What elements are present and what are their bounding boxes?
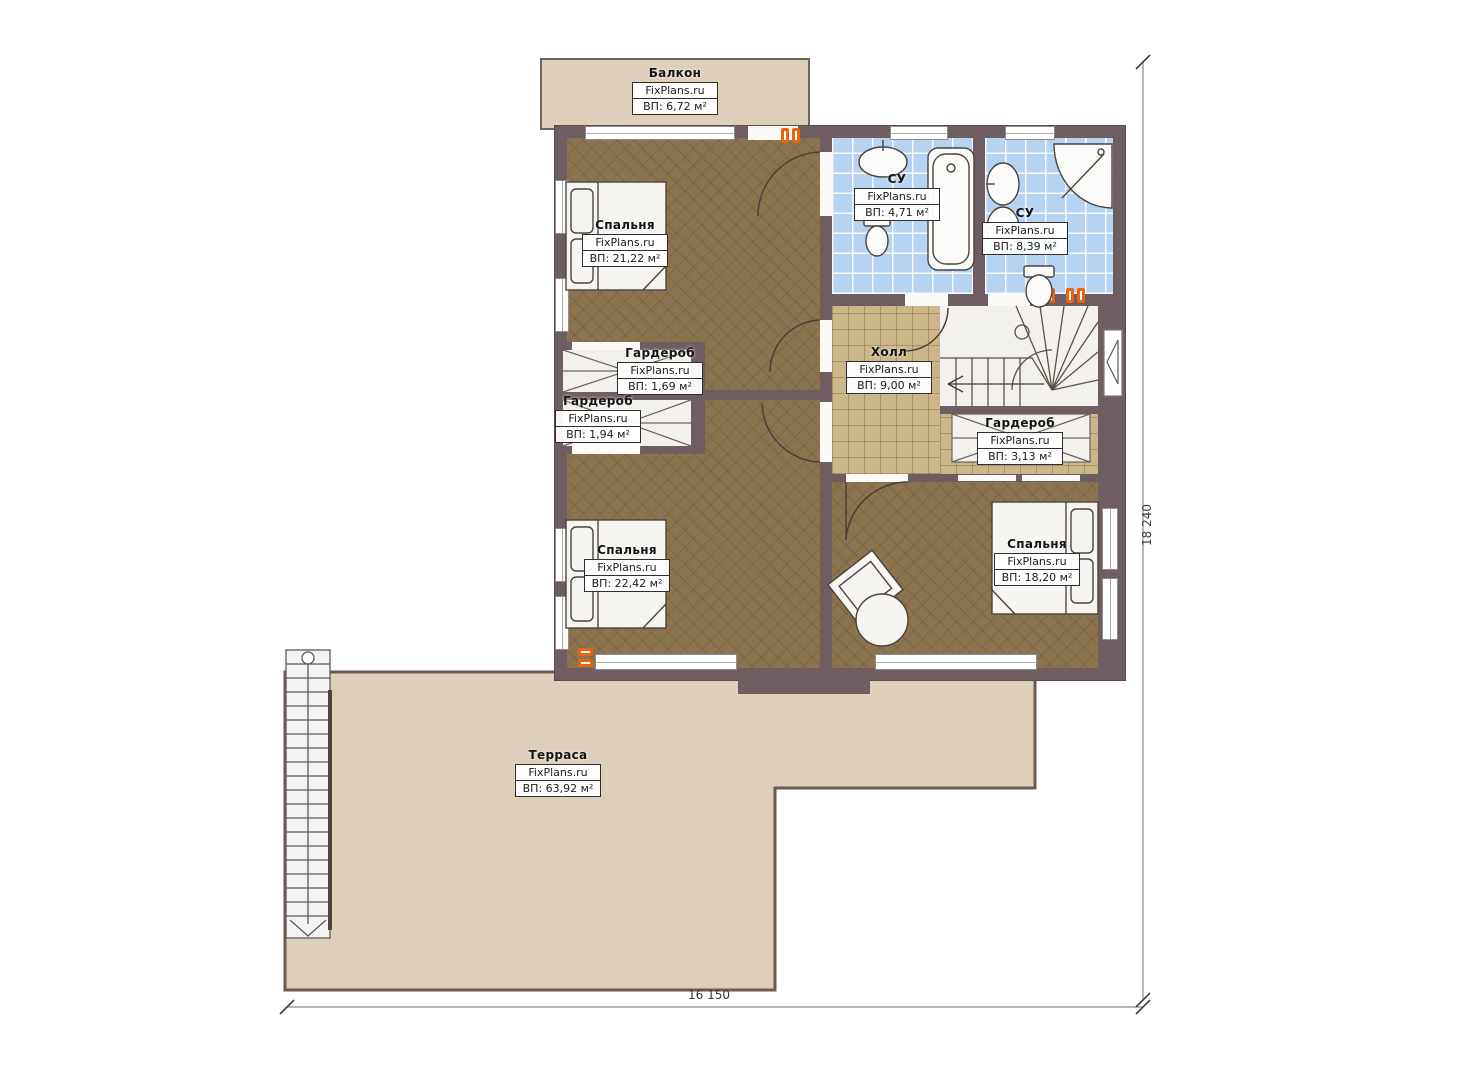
room-area: ВП: 4,71 м² [854, 204, 940, 221]
door-opening-wardrobe2 [572, 444, 640, 454]
window-bedroom1-left-b [555, 278, 569, 332]
radiator-icon [1036, 288, 1055, 303]
room-name: Гардероб [555, 394, 641, 408]
wall-above-wardrobe-3 [940, 406, 1098, 414]
room-label-bathroom-2: СУ FixPlans.ru ВП: 8,39 м² [982, 206, 1068, 255]
window-bedroom2-bottom [595, 654, 737, 670]
radiator-icon [781, 128, 800, 143]
watermark: FixPlans.ru [584, 559, 670, 576]
room-area: ВП: 1,69 м² [617, 378, 703, 395]
room-name: Терраса [515, 748, 601, 762]
window-bedroom3-bottom [875, 654, 1037, 670]
watermark: FixPlans.ru [854, 188, 940, 205]
room-area: ВП: 1,94 м² [555, 426, 641, 443]
watermark: FixPlans.ru [846, 361, 932, 378]
watermark: FixPlans.ru [515, 764, 601, 781]
room-name: СУ [982, 206, 1068, 220]
window-bathroom2-top [1005, 126, 1055, 140]
watermark: FixPlans.ru [982, 222, 1068, 239]
door-opening-bedroom3 [846, 474, 908, 482]
room-name: Спальня [584, 543, 670, 557]
room-label-bedroom-1: Спальня FixPlans.ru ВП: 21,22 м² [582, 218, 668, 267]
room-label-wardrobe-3: Гардероб FixPlans.ru ВП: 3,13 м² [977, 416, 1063, 465]
window-bedroom2-left-a [555, 528, 569, 582]
door-opening-bathroom1 [905, 294, 948, 306]
room-area: ВП: 8,39 м² [982, 238, 1068, 255]
exterior-stairs-icon [286, 650, 330, 938]
room-area: ВП: 18,20 м² [994, 569, 1080, 586]
window-bedroom2-left-b [555, 596, 569, 650]
room-area: ВП: 21,22 м² [582, 250, 668, 267]
window-bedroom1-left-a [555, 180, 569, 234]
room-name: Гардероб [617, 346, 703, 360]
room-area: ВП: 22,42 м² [584, 575, 670, 592]
wall-porch-stub [738, 678, 870, 694]
door-opening-bedroom1-top [820, 152, 832, 216]
floor-plan-canvas: Балкон FixPlans.ru ВП: 6,72 м² Спальня F… [0, 0, 1474, 1080]
window-bedroom3-right-b [1102, 578, 1118, 640]
room-label-bedroom-2: Спальня FixPlans.ru ВП: 22,42 м² [584, 543, 670, 592]
room-name: Спальня [994, 537, 1080, 551]
dimension-bottom: 16 150 [688, 988, 730, 1002]
room-name: СУ [854, 172, 940, 186]
radiator-icon [1066, 288, 1085, 303]
room-name: Гардероб [977, 416, 1063, 430]
room-area: ВП: 63,92 м² [515, 780, 601, 797]
window-bedroom1-top [585, 126, 735, 140]
door-opening-wardrobe3-b [1022, 475, 1080, 481]
dimension-right: 18 240 [1140, 504, 1154, 546]
room-label-wardrobe-1: Гардероб FixPlans.ru ВП: 1,69 м² [617, 346, 703, 395]
room-area: ВП: 9,00 м² [846, 377, 932, 394]
door-opening-wardrobe3-a [958, 475, 1016, 481]
terrace-floor [285, 672, 1035, 990]
room-label-hall: Холл FixPlans.ru ВП: 9,00 м² [846, 345, 932, 394]
room-name: Балкон [632, 66, 718, 80]
radiator-icon [578, 648, 593, 667]
watermark: FixPlans.ru [977, 432, 1063, 449]
room-label-balcony: Балкон FixPlans.ru ВП: 6,72 м² [632, 66, 718, 115]
room-area: ВП: 6,72 м² [632, 98, 718, 115]
watermark: FixPlans.ru [994, 553, 1080, 570]
room-name: Холл [846, 345, 932, 359]
window-bedroom3-right-a [1102, 508, 1118, 570]
door-opening-bedroom1-hall [820, 320, 832, 372]
room-label-wardrobe-2: Гардероб FixPlans.ru ВП: 1,94 м² [555, 394, 641, 443]
wall-bedroom-divider [700, 390, 832, 400]
watermark: FixPlans.ru [582, 234, 668, 251]
window-bathroom1-top [890, 126, 948, 140]
room-name: Спальня [582, 218, 668, 232]
door-opening-bathroom2 [988, 294, 1030, 306]
room-label-bedroom-3: Спальня FixPlans.ru ВП: 18,20 м² [994, 537, 1080, 586]
floor-staircase [940, 306, 1098, 406]
room-area: ВП: 3,13 м² [977, 448, 1063, 465]
room-label-bathroom-1: СУ FixPlans.ru ВП: 4,71 м² [854, 172, 940, 221]
watermark: FixPlans.ru [555, 410, 641, 427]
room-label-terrace: Терраса FixPlans.ru ВП: 63,92 м² [515, 748, 601, 797]
door-opening-bedroom2 [820, 402, 832, 462]
watermark: FixPlans.ru [617, 362, 703, 379]
watermark: FixPlans.ru [632, 82, 718, 99]
